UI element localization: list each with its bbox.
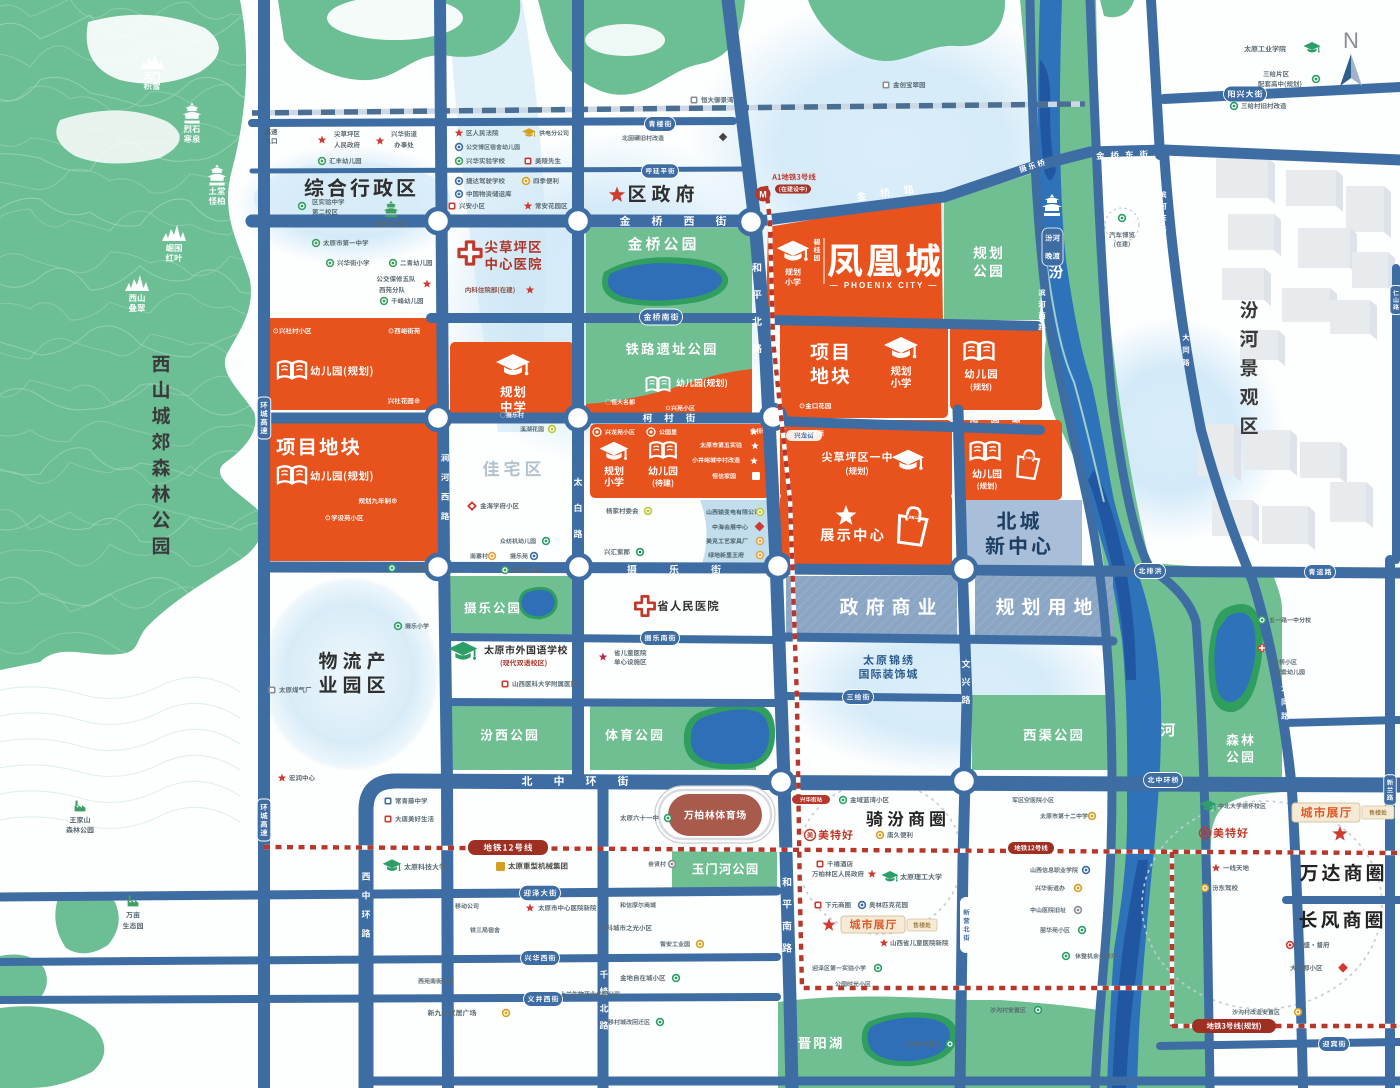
svg-text:N: N xyxy=(1343,28,1359,53)
svg-text:— PHOENIX CITY —: — PHOENIX CITY — xyxy=(830,281,939,290)
svg-text:M: M xyxy=(759,190,767,200)
